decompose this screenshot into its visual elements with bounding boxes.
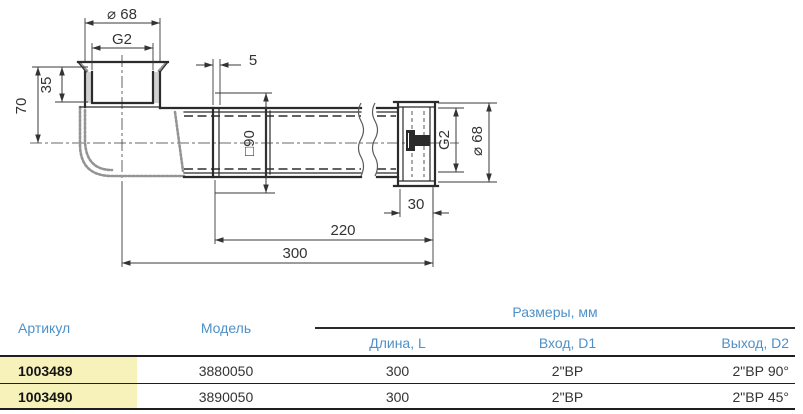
- table-row-model: 3890050: [137, 389, 315, 405]
- column-header-inlet: Вход, D1: [480, 335, 655, 351]
- dim-label-right-diameter: ⌀ 68: [469, 126, 486, 156]
- table-rule-top: [0, 355, 795, 357]
- pipe: [160, 103, 398, 177]
- column-header-length: Длина, L: [315, 335, 480, 351]
- outlet-socket: [394, 102, 438, 186]
- dim-label-top-diameter: ⌀ 68: [107, 6, 137, 23]
- column-group-header-sizes: Размеры, мм: [315, 304, 795, 320]
- catalog-page: ⌀ 68 G2 35 70 5 □90: [0, 0, 803, 414]
- dim-label-right-thread: G2: [436, 130, 453, 150]
- table-row-outlet: 2"ВР 45°: [655, 389, 795, 405]
- spec-table: Артикул Модель Размеры, мм Длина, L Вход…: [0, 300, 803, 414]
- drain-plug: [406, 130, 430, 151]
- table-row-inlet: 2"ВР: [480, 389, 655, 405]
- center-lines: [30, 55, 459, 182]
- dim-label-flange-square: □90: [241, 130, 258, 156]
- table-row-article: 1003489: [0, 363, 137, 379]
- dim-label-total-length: 300: [282, 245, 307, 262]
- inlet-socket: [78, 62, 168, 108]
- table-row-length: 300: [315, 389, 480, 405]
- table-row-outlet: 2"ВР 90°: [655, 363, 795, 379]
- group-header-rule: [315, 327, 795, 329]
- dim-label-top-thread: G2: [112, 31, 132, 48]
- table-row-length: 300: [315, 363, 480, 379]
- table-row-model: 3880050: [137, 363, 315, 379]
- table-row-article: 1003490: [0, 389, 137, 405]
- column-header-model: Модель: [137, 320, 315, 336]
- dim-label-pipe-length: 220: [330, 222, 355, 239]
- table-row-inlet: 2"ВР: [480, 363, 655, 379]
- table-rule-middle: [0, 383, 795, 384]
- column-header-article: Артикул: [0, 320, 137, 336]
- column-header-outlet: Выход, D2: [655, 335, 795, 351]
- elbow-body: [80, 63, 184, 176]
- dim-label-elbow-height: 70: [13, 98, 30, 115]
- dim-label-right-socket-length: 30: [408, 196, 425, 213]
- dim-label-socket-depth: 35: [38, 77, 55, 94]
- technical-drawing: ⌀ 68 G2 35 70 5 □90: [0, 0, 803, 296]
- dim-label-flange-thickness: 5: [249, 52, 257, 69]
- table-rule-bottom: [0, 408, 795, 410]
